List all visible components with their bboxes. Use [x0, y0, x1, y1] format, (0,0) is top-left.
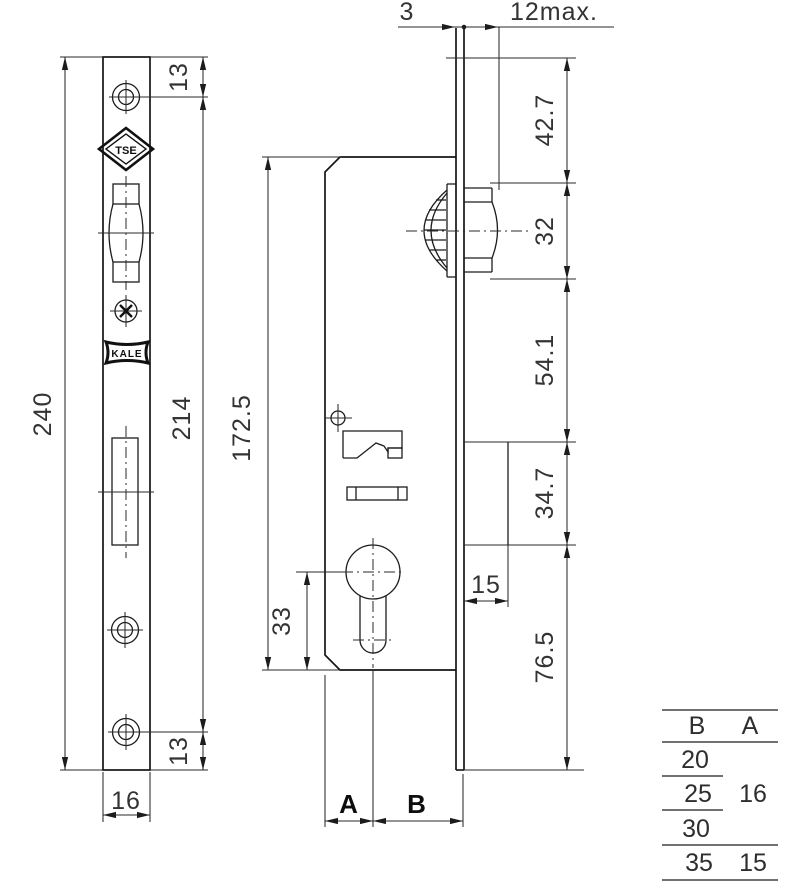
table-row-b-20: 20 [681, 746, 709, 774]
drawing-canvas: TSE KALE [0, 0, 800, 893]
dim-a-label: A [339, 789, 359, 819]
dim-172-5-label: 172.5 [228, 394, 256, 462]
deadbolt-slot [98, 426, 154, 558]
dim-13-top-label: 13 [165, 62, 193, 92]
kale-logo: KALE [106, 342, 148, 363]
dim-13-bottom-label: 13 [165, 736, 193, 766]
latch-follower-cam [343, 431, 402, 458]
tse-logo-text: TSE [115, 145, 136, 157]
table-row-b-30: 30 [682, 815, 710, 843]
table-cell-a-15: 15 [739, 849, 767, 877]
dim-54-1-label: 54.1 [531, 334, 559, 387]
backset-dimensions: A B [325, 670, 463, 827]
dim-240-label: 240 [29, 392, 57, 437]
dim-15-label: 15 [471, 571, 501, 599]
faceplate-dimensions: 240 13 214 13 16 [29, 57, 208, 822]
kale-logo-text: KALE [111, 349, 142, 360]
dim-76-5-label: 76.5 [531, 631, 559, 684]
dim-214-label: 214 [168, 396, 196, 441]
lock-case-side-view: 172.5 33 A B [228, 157, 463, 827]
dim-32-label: 32 [531, 216, 559, 246]
table-row-b-25: 25 [684, 780, 712, 808]
dim-33-label: 33 [268, 606, 296, 636]
knurl-ticks [424, 200, 446, 260]
right-dimension-chain: 15 42.7 32 54.1 34.7 76.5 [446, 58, 584, 770]
table-header-b: B [689, 712, 706, 740]
table-row-b-35: 35 [685, 849, 713, 877]
ba-table: B A 20 25 16 30 35 15 [662, 710, 778, 880]
dim-34-7-label: 34.7 [531, 467, 559, 520]
table-header-a: A [742, 712, 759, 740]
spindle-barrel-cutout [98, 176, 154, 290]
dim-3-label: 3 [400, 0, 415, 26]
thumbturn-knob [406, 184, 532, 277]
dim-dot [462, 25, 467, 30]
dim-16-label: 16 [111, 787, 141, 815]
euro-cylinder-hole [342, 538, 404, 668]
screw-hole-bottom [108, 714, 208, 750]
dim-42-7-label: 42.7 [531, 94, 559, 147]
tse-logo: TSE [99, 128, 153, 170]
dim-12max-label: 12max. [510, 0, 598, 26]
forend-strip [456, 28, 464, 770]
screw-hole-middle [107, 612, 143, 648]
screw-hole-top [109, 80, 208, 114]
lock-technical-drawing: TSE KALE [0, 0, 800, 893]
dim-b-label: B [407, 789, 427, 819]
case-screw-hole [325, 404, 352, 432]
phillips-screw [110, 295, 142, 327]
top-dimensions: 3 12max. [398, 0, 614, 190]
table-cell-a-16: 16 [739, 780, 767, 808]
latch-bar [347, 487, 407, 500]
